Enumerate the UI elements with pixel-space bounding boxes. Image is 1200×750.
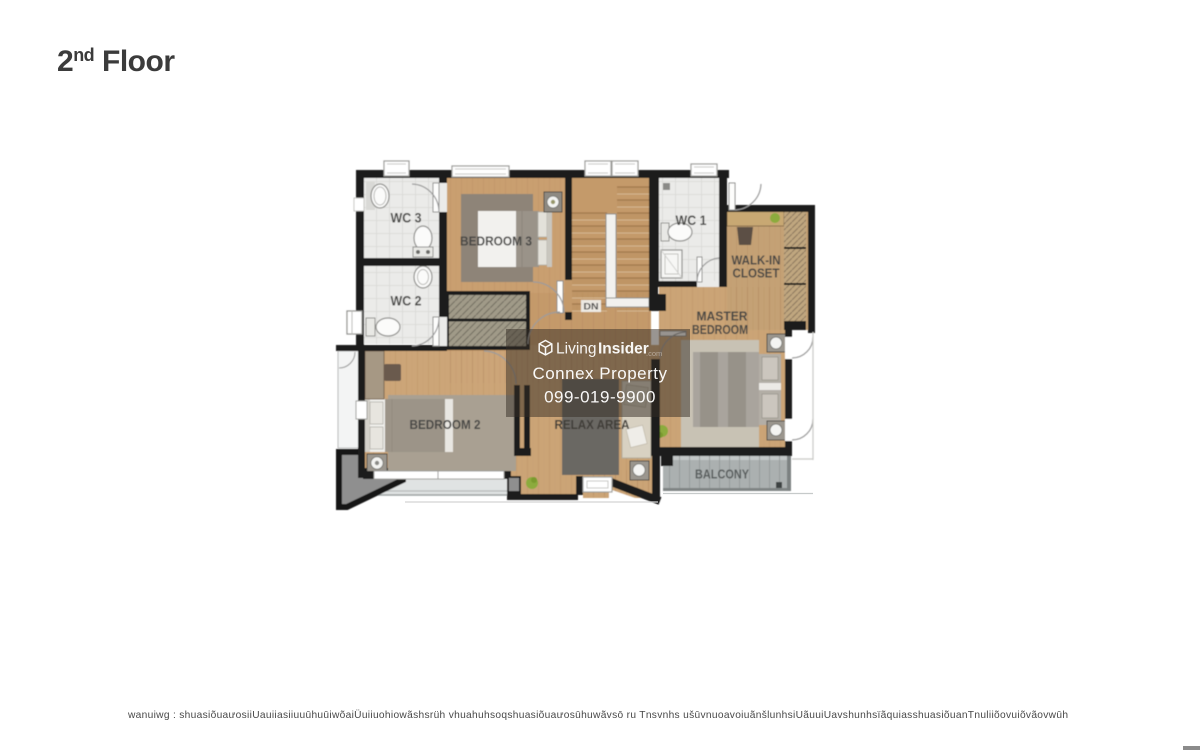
svg-text:Living: Living	[556, 341, 597, 358]
svg-text:BEDROOM 2: BEDROOM 2	[410, 417, 481, 432]
svg-text:WC 1: WC 1	[676, 213, 707, 228]
svg-text:Insider: Insider	[598, 341, 649, 358]
svg-text:WC 3: WC 3	[391, 211, 422, 226]
svg-text:MASTER: MASTER	[697, 310, 748, 324]
svg-text:BALCONY: BALCONY	[695, 468, 750, 482]
svg-text:WC 2: WC 2	[391, 294, 422, 309]
svg-text:099-019-9900: 099-019-9900	[544, 388, 656, 407]
svg-text:CLOSET: CLOSET	[733, 267, 780, 281]
svg-text:DN: DN	[584, 302, 599, 312]
svg-text:WALK-IN: WALK-IN	[732, 254, 781, 268]
svg-text:BEDROOM: BEDROOM	[692, 323, 748, 337]
svg-text:wanuiwg : shuasiõuaưosiiUauiia: wanuiwg : shuasiõuaưosiiUauiiasiiuuūhuūi…	[127, 709, 1068, 721]
svg-text:BEDROOM 3: BEDROOM 3	[460, 234, 532, 249]
svg-text:.com: .com	[646, 349, 662, 358]
svg-text:RELAX AREA: RELAX AREA	[555, 417, 631, 432]
svg-text:2nd Floor: 2nd Floor	[57, 45, 175, 78]
svg-text:Connex Property: Connex Property	[532, 364, 667, 383]
